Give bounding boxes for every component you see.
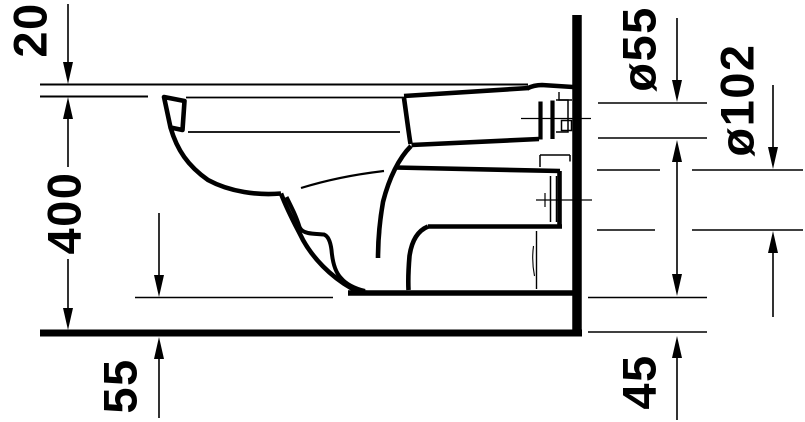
dim-label-rear-floor-gap: 45 bbox=[613, 354, 666, 409]
dim-label-outlet-diameter: ø102 bbox=[711, 43, 764, 156]
technical-drawing-canvas: 20 400 55 ø55 ø102 45 bbox=[0, 0, 805, 422]
dim-label-seat-offset: 20 bbox=[4, 2, 57, 57]
dim-label-front-floor-gap: 55 bbox=[94, 358, 147, 413]
dim-label-rim-height: 400 bbox=[38, 172, 91, 255]
dim-label-flush-diameter: ø55 bbox=[613, 6, 666, 92]
toilet-dimension-drawing: 20 400 55 ø55 ø102 45 bbox=[0, 0, 805, 422]
